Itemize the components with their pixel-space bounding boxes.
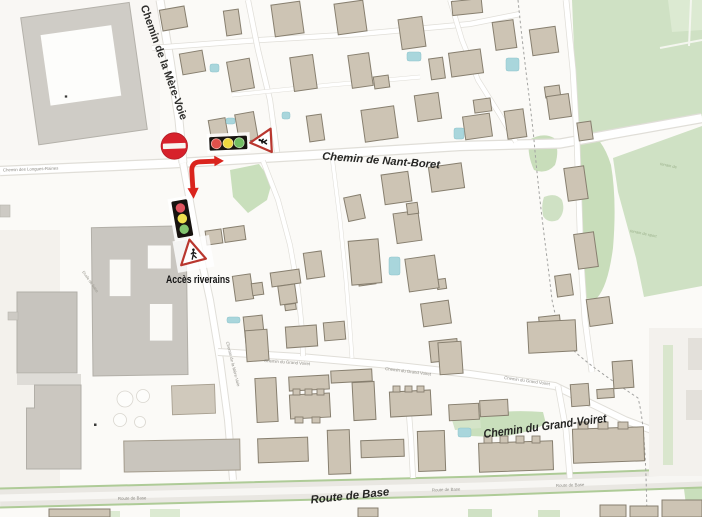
svg-text:Route de Base: Route de Base — [432, 486, 461, 492]
svg-text:Accès riverains: Accès riverains — [166, 274, 230, 286]
svg-text:Route de Base: Route de Base — [556, 482, 585, 488]
svg-text:Route de Base: Route de Base — [118, 495, 147, 501]
